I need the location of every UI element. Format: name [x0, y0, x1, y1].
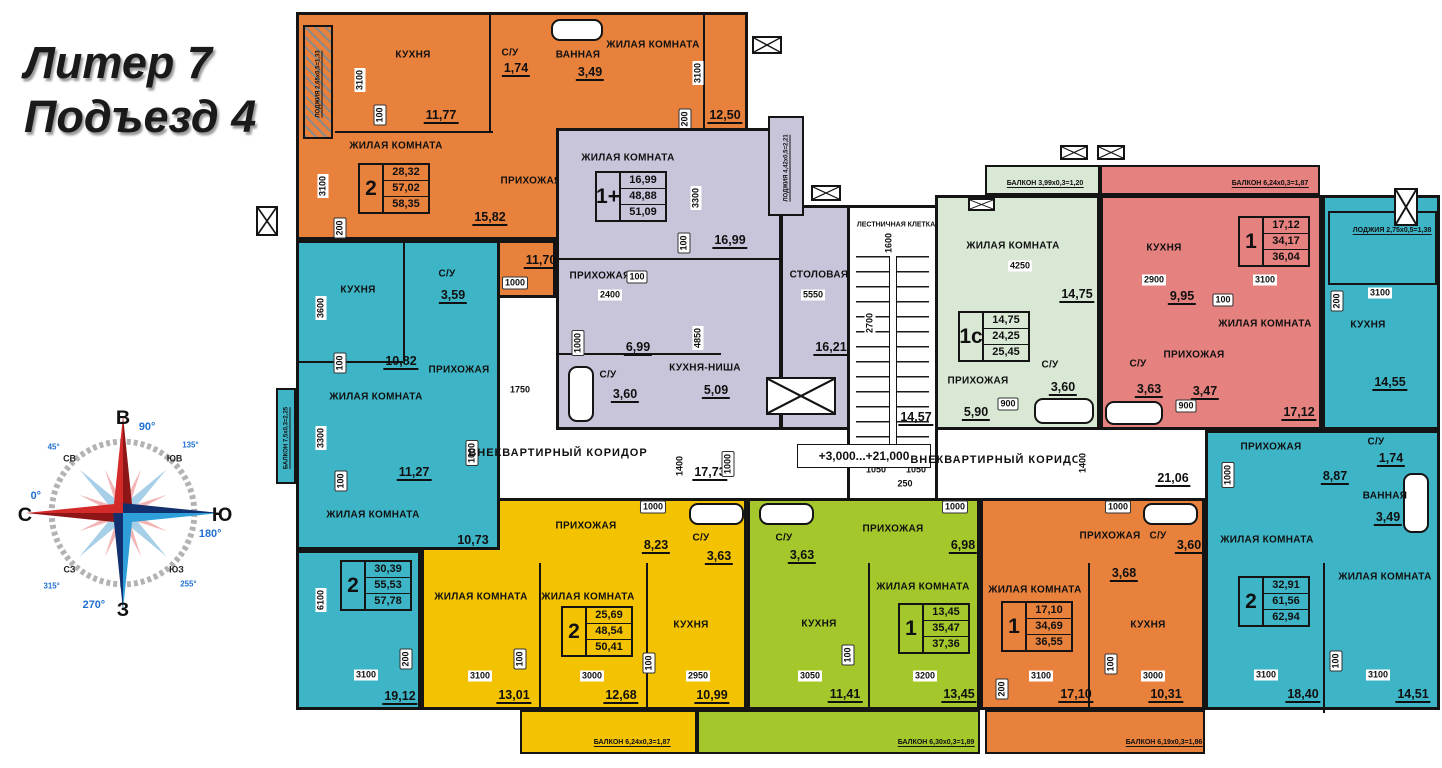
- balcony-label: БАЛКОН 3,99х0,3=1,20: [1007, 180, 1084, 188]
- spec-table: 2 32,91 61,56 62,94: [1238, 576, 1310, 627]
- balcony-strip: БАЛКОН 6,24х0,3=1,87: [1100, 165, 1320, 195]
- compass-deg-nw: 315°: [43, 581, 59, 590]
- dim: 2950: [686, 671, 710, 682]
- dim: 250: [895, 479, 914, 490]
- dim: 100: [1105, 653, 1118, 674]
- room-living2: ЖИЛАЯ КОМНАТА: [606, 40, 699, 51]
- room-wc: С/У: [438, 269, 455, 280]
- room-kitchen: КУХНЯ: [340, 285, 375, 296]
- balcony-label: БАЛКОН 7,5х0,3=2,25: [284, 407, 291, 469]
- spec-area: 55,53: [366, 578, 410, 594]
- loggia-strip: ЛОДЖИЯ 2,65х0,5=1,33: [303, 25, 333, 139]
- window-brace-icon: [1097, 145, 1125, 160]
- wall-line: [539, 563, 541, 713]
- room-living1: ЖИЛАЯ КОМНАТА: [329, 392, 422, 403]
- compass-south: Ю: [212, 504, 232, 526]
- dim: 100: [335, 470, 348, 491]
- wall-line: [1323, 563, 1325, 713]
- compass-sw: ЮЗ: [169, 564, 184, 574]
- spec-living: 17,12: [1264, 218, 1308, 234]
- room-bath: ВАННАЯ: [556, 50, 601, 61]
- dim: 100: [643, 652, 656, 673]
- spec-rooms: 1с: [960, 313, 984, 360]
- room-kitchen-area: 10,82: [383, 354, 418, 370]
- bathtub-icon: [759, 503, 814, 525]
- spec-total: 37,36: [924, 637, 968, 652]
- dim: 3200: [913, 671, 937, 682]
- room-living2: ЖИЛАЯ КОМНАТА: [541, 592, 634, 603]
- bathtub-icon: [1143, 503, 1198, 525]
- window-brace-icon: [1060, 145, 1088, 160]
- spec-values: 30,39 55,53 57,78: [366, 562, 410, 609]
- room-kitchen: КУХНЯ: [1130, 620, 1165, 631]
- compass-deg-ne: 45°: [48, 443, 60, 452]
- room-kitchen: КУХНЯ: [395, 50, 430, 61]
- window-brace-icon: [752, 36, 782, 54]
- spec-area: 61,56: [1264, 594, 1308, 610]
- spec-rooms: 1+: [597, 173, 621, 220]
- room-dining: СТОЛОВАЯ: [790, 270, 849, 281]
- room-wc-area: 3,59: [439, 288, 467, 304]
- spec-total: 25,45: [984, 345, 1028, 360]
- room-kitchen-area: 10,99: [694, 688, 729, 704]
- apartment-red: КУХНЯ 2900 9,95 100 1 17,12 34,17 36,04 …: [1100, 195, 1322, 430]
- room-hall-area: 6,98: [949, 538, 977, 554]
- compass-deg-sw: 255°: [180, 579, 196, 588]
- room-bath-area: 3,49: [576, 65, 604, 81]
- room-wc: С/У: [1041, 360, 1058, 371]
- compass-deg-west: 270°: [83, 599, 106, 611]
- spec-living: 13,45: [924, 605, 968, 621]
- bathtub-icon: [689, 503, 744, 525]
- spec-living: 16,99: [621, 173, 665, 189]
- spec-values: 17,10 34,69 36,55: [1027, 603, 1071, 650]
- compass-deg-south: 180°: [199, 528, 222, 540]
- room-living-area: 17,10: [1058, 687, 1093, 703]
- compass-east: В: [116, 407, 130, 429]
- dim: 3000: [580, 671, 604, 682]
- dim: 200: [400, 648, 413, 669]
- room-hall: ПРИХОЖАЯ: [1164, 350, 1225, 361]
- stairwell-area: 14,57: [898, 410, 933, 426]
- room-living: ЖИЛАЯ КОМНАТА: [876, 582, 969, 593]
- spec-total: 50,41: [587, 640, 631, 655]
- wall-line: [489, 15, 491, 131]
- spec-table: 1 17,12 34,17 36,04: [1238, 216, 1310, 267]
- room-hall-area: 11,70: [524, 253, 559, 269]
- apartment-green-1c: ЖИЛАЯ КОМНАТА 4250 14,75 1с 14,75 24,25 …: [935, 195, 1100, 430]
- apartment-orange-bottom: ЖИЛАЯ КОМНАТА 1 17,10 34,69 36,55 ПРИХОЖ…: [980, 498, 1205, 710]
- room-living: ЖИЛАЯ КОМНАТА: [988, 585, 1081, 596]
- room-hall-area: 6,99: [624, 340, 652, 356]
- spec-area: 24,25: [984, 329, 1028, 345]
- room-kitchen-area: 11,41: [828, 687, 863, 703]
- dim: 2400: [598, 290, 622, 301]
- room-wc: С/У: [775, 533, 792, 544]
- room-hall: ПРИХОЖАЯ: [501, 176, 562, 187]
- dim: 3100: [318, 174, 329, 198]
- dim: 100: [678, 232, 691, 253]
- spec-rooms: 1: [1003, 603, 1027, 650]
- bathtub-icon: [551, 19, 603, 41]
- compass-ne: СВ: [63, 453, 76, 463]
- dim: 1000: [942, 501, 968, 514]
- spec-living: 32,91: [1264, 578, 1308, 594]
- spec-table: 1 13,45 35,47 37,36: [898, 603, 970, 654]
- dim: 900: [997, 398, 1018, 411]
- dim: 1000: [1105, 501, 1131, 514]
- dim: 6100: [316, 588, 327, 612]
- room-living1-area: 13,01: [496, 688, 531, 704]
- spec-total: 62,94: [1264, 610, 1308, 625]
- compass-west: З: [117, 599, 129, 621]
- dim: 4250: [1008, 261, 1032, 272]
- dim: 100: [842, 644, 855, 665]
- stair-rail: [889, 256, 897, 456]
- apartment-teal-right-bottom: ПРИХОЖАЯ 1000 8,87 С/У 1,74 ВАННАЯ 3,49 …: [1205, 430, 1440, 710]
- room-living3-area: 19,12: [382, 689, 417, 705]
- spec-rooms: 2: [342, 562, 366, 609]
- dim: 1400: [1078, 451, 1089, 475]
- dim: 2700: [865, 311, 876, 335]
- spec-living: 25,69: [587, 608, 631, 624]
- compass-se: ЮВ: [167, 453, 183, 463]
- room-living2: ЖИЛАЯ КОМНАТА: [1338, 572, 1431, 583]
- dim: 3050: [798, 671, 822, 682]
- room-hall-area: 5,90: [962, 405, 990, 421]
- room-wc: С/У: [1149, 531, 1166, 542]
- dim: 3100: [1366, 670, 1390, 681]
- room-hall-area: 3,68: [1110, 566, 1138, 582]
- dim: 1750: [508, 385, 532, 396]
- spec-area: 48,88: [621, 189, 665, 205]
- room-living2-area: 12,50: [707, 108, 742, 124]
- dim: 3100: [1368, 288, 1392, 299]
- room-hall-area: 3,47: [1191, 384, 1219, 400]
- room-wc: С/У: [1367, 437, 1384, 448]
- room-kitchen: КУХНЯ: [801, 619, 836, 630]
- window-brace-icon: [811, 185, 841, 201]
- room-living-area: 16,99: [712, 233, 747, 249]
- dim: 4850: [693, 326, 704, 350]
- dim: 100: [626, 271, 647, 284]
- title-line1: Литер 7: [24, 36, 256, 90]
- room-living1-area: 11,27: [397, 465, 432, 481]
- bathtub-icon: [1403, 473, 1429, 533]
- apartment-teal-left: КУХНЯ С/У 3,59 3600 100 10,82 ПРИХОЖАЯ Ж…: [296, 240, 500, 550]
- bathtub-icon: [1105, 401, 1163, 425]
- window-brace-icon: [256, 206, 278, 236]
- room-wc-area: 1,74: [502, 61, 530, 77]
- room-hall: ПРИХОЖАЯ: [556, 521, 617, 532]
- balcony-label: БАЛКОН 6,24х0,3=1,87: [1232, 180, 1309, 188]
- compass-deg-north: 0°: [31, 490, 41, 502]
- dim: 200: [996, 678, 1009, 699]
- spec-living: 30,39: [366, 562, 410, 578]
- wall-line: [335, 131, 493, 133]
- dim: 3100: [1029, 671, 1053, 682]
- spec-table: 1с 14,75 24,25 25,45: [958, 311, 1030, 362]
- spec-area: 48,54: [587, 624, 631, 640]
- spec-area: 35,47: [924, 621, 968, 637]
- dim: 900: [1175, 400, 1196, 413]
- spec-living: 14,75: [984, 313, 1028, 329]
- spec-total: 51,09: [621, 205, 665, 220]
- bathtub-icon: [568, 366, 594, 422]
- balcony-label: БАЛКОН 6,24х0,3=1,87: [594, 739, 671, 747]
- room-kitchen-niche-area: 5,09: [702, 383, 730, 399]
- room-kitchen-area: 9,95: [1168, 289, 1196, 305]
- room-living1-area: 18,40: [1285, 687, 1320, 703]
- balcony-strip: БАЛКОН 3,99х0,3=1,20: [985, 165, 1100, 195]
- room-wc-area: 3,60: [1175, 538, 1203, 554]
- compass-deg-se: 135°: [182, 441, 198, 450]
- wall-line: [646, 563, 648, 713]
- spec-area: 34,69: [1027, 619, 1071, 635]
- compass-rose: С В Ю З 0° 90° 180° 270° СВ ЮВ ЮЗ СЗ 45°…: [14, 404, 232, 622]
- window-brace-icon: [968, 198, 995, 211]
- dim: 1000: [640, 501, 666, 514]
- dim: 1000: [1222, 462, 1235, 488]
- floor-plan: Литер 7 Подъезд 4 ПРИХОЖАЯ 1000 8,23 С/У…: [0, 0, 1442, 768]
- dim: 3100: [1253, 275, 1277, 286]
- room-wc-area: 3,63: [1135, 382, 1163, 398]
- spec-total: 36,55: [1027, 635, 1071, 650]
- room-kitchen-area: 14,55: [1372, 375, 1407, 391]
- corridor-left-label: ВНЕКВАРТИРНЫЙ КОРИДОР: [468, 447, 647, 459]
- bathtub-icon: [1034, 398, 1094, 424]
- loggia-strip: ЛОДЖИЯ 4,42х0,5=2,21: [768, 116, 804, 216]
- room-living: ЖИЛАЯ КОМНАТА: [581, 153, 674, 164]
- room-hall-area: 8,23: [642, 538, 670, 554]
- dim: 3100: [355, 68, 366, 92]
- room-wc-area: 3,63: [705, 549, 733, 565]
- room-wc-area: 3,60: [611, 387, 639, 403]
- dim: 100: [514, 648, 527, 669]
- room-dining-area: 16,21: [813, 340, 848, 356]
- apartment-teal-left-lower: 2 30,39 55,53 57,78 6100 200 3100 19,12: [296, 550, 421, 710]
- room-hall: ПРИХОЖАЯ: [1080, 531, 1141, 542]
- loggia-label: ЛОДЖИЯ 4,42х0,5=2,21: [784, 134, 791, 201]
- apartment-teal-right-top: ЛОДЖИЯ 2,75х0,5=1,38 3100 200 КУХНЯ 14,5…: [1322, 195, 1440, 430]
- room-living2-area: 10,73: [455, 533, 490, 549]
- room-wc-area: 1,74: [1377, 451, 1405, 467]
- room-living-area: 13,45: [941, 687, 976, 703]
- apartment-purple: ЖИЛАЯ КОМНАТА 1+ 16,99 48,88 51,09 3300 …: [556, 128, 782, 430]
- room-living1: ЖИЛАЯ КОМНАТА: [349, 141, 442, 152]
- spec-rooms: 1: [1240, 218, 1264, 265]
- balcony-strip: БАЛКОН 6,30х0,3=1,89: [697, 710, 980, 754]
- dim: 100: [334, 352, 347, 373]
- dim: 1600: [884, 231, 895, 255]
- room-living: ЖИЛАЯ КОМНАТА: [966, 241, 1059, 252]
- balcony-strip: БАЛКОН 7,5х0,3=2,25: [276, 388, 296, 484]
- room-wc: С/У: [501, 48, 518, 59]
- loggia-strip: ЛОДЖИЯ 2,75х0,5=1,38: [1328, 211, 1437, 285]
- room-kitchen-niche: КУХНЯ-НИША: [669, 363, 741, 374]
- spec-table: 2 28,32 57,02 58,35: [358, 163, 430, 214]
- dim: 2900: [1142, 275, 1166, 286]
- room-living2-area: 12,68: [603, 688, 638, 704]
- dim: 3300: [691, 186, 702, 210]
- room-hall: ПРИХОЖАЯ: [863, 524, 924, 535]
- balcony-strip: БАЛКОН 6,19х0,3=1,86: [985, 710, 1205, 754]
- dim: 1400: [675, 454, 686, 478]
- spec-table: 2 25,69 48,54 50,41: [561, 606, 633, 657]
- compass-north: С: [18, 504, 32, 526]
- room-hall: ПРИХОЖАЯ: [948, 376, 1009, 387]
- compass-nw: СЗ: [64, 564, 76, 574]
- spec-table: 1 17,10 34,69 36,55: [1001, 601, 1073, 652]
- compass-deg-east: 90°: [139, 421, 155, 433]
- apartment-orange-top-hall: 11,70 1000: [493, 240, 556, 298]
- dim: 1000: [572, 330, 585, 356]
- room-living: ЖИЛАЯ КОМНАТА: [1218, 319, 1311, 330]
- stairwell-label: ЛЕСТНИЧНАЯ КЛЕТКА: [857, 222, 935, 229]
- room-living1-area: 15,82: [472, 210, 507, 226]
- room-wc-area: 3,63: [788, 548, 816, 564]
- dim: 3000: [1141, 671, 1165, 682]
- spec-values: 25,69 48,54 50,41: [587, 608, 631, 655]
- dim: 200: [679, 108, 692, 129]
- room-living1: ЖИЛАЯ КОМНАТА: [1220, 535, 1313, 546]
- room-kitchen-area: 11,77: [424, 108, 459, 124]
- room-wc-area: 3,60: [1049, 380, 1077, 396]
- dim: 3100: [468, 671, 492, 682]
- dim: 3300: [316, 426, 327, 450]
- room-living-area: 14,75: [1059, 287, 1094, 303]
- room-bath-area: 3,49: [1374, 510, 1402, 526]
- spec-values: 28,32 57,02 58,35: [384, 165, 428, 212]
- spec-table: 1+ 16,99 48,88 51,09: [595, 171, 667, 222]
- room-hall: ПРИХОЖАЯ: [429, 365, 490, 376]
- room-kitchen: КУХНЯ: [1350, 320, 1385, 331]
- loggia-label: ЛОДЖИЯ 2,65х0,5=1,33: [316, 50, 323, 117]
- room-hall-area: 8,87: [1321, 469, 1349, 485]
- balcony-strip: БАЛКОН 6,24х0,3=1,87: [520, 710, 697, 754]
- corridor-right-label: ВНЕКВАРТИРНЫЙ КОРИДОР: [910, 454, 1089, 466]
- room-wc: С/У: [1129, 359, 1146, 370]
- room-bath: ВАННАЯ: [1363, 491, 1408, 502]
- dim: 5550: [801, 290, 825, 301]
- room-living2-area: 14,51: [1395, 687, 1430, 703]
- balcony-label: БАЛКОН 6,30х0,3=1,89: [898, 739, 975, 747]
- room-living1: ЖИЛАЯ КОМНАТА: [434, 592, 527, 603]
- room-living2: ЖИЛАЯ КОМНАТА: [326, 510, 419, 521]
- spec-table: 2 30,39 55,53 57,78: [340, 560, 412, 611]
- elevator-shaft-icon: [766, 377, 836, 415]
- dim: 100: [374, 104, 387, 125]
- dim: 3600: [316, 296, 327, 320]
- room-wc: С/У: [599, 370, 616, 381]
- spec-values: 16,99 48,88 51,09: [621, 173, 665, 220]
- spec-area: 34,17: [1264, 234, 1308, 250]
- spec-rooms: 2: [1240, 578, 1264, 625]
- dim: 200: [334, 217, 347, 238]
- spec-total: 58,35: [384, 197, 428, 212]
- spec-living: 17,10: [1027, 603, 1071, 619]
- wall-line: [559, 258, 783, 260]
- page-title: Литер 7 Подъезд 4: [24, 36, 256, 144]
- spec-living: 28,32: [384, 165, 428, 181]
- loggia-label: ЛОДЖИЯ 2,75х0,5=1,38: [1353, 227, 1432, 235]
- spec-rooms: 2: [563, 608, 587, 655]
- spec-values: 14,75 24,25 25,45: [984, 313, 1028, 360]
- title-line2: Подъезд 4: [24, 90, 256, 144]
- dim: 3100: [693, 61, 704, 85]
- window-brace-icon: [1394, 188, 1418, 226]
- wall-line: [403, 243, 405, 361]
- spec-total: 36,04: [1264, 250, 1308, 265]
- room-kitchen: КУХНЯ: [1146, 243, 1181, 254]
- room-hall: ПРИХОЖАЯ: [1241, 442, 1302, 453]
- balcony-label: БАЛКОН 6,19х0,3=1,86: [1126, 739, 1203, 747]
- spec-values: 17,12 34,17 36,04: [1264, 218, 1308, 265]
- dim: 200: [1331, 290, 1344, 311]
- spec-area: 57,02: [384, 181, 428, 197]
- dim: 1000: [502, 277, 528, 290]
- room-kitchen: КУХНЯ: [673, 620, 708, 631]
- wall-line: [868, 563, 870, 713]
- dim: 100: [1212, 294, 1233, 307]
- spec-rooms: 1: [900, 605, 924, 652]
- spec-total: 57,78: [366, 594, 410, 609]
- corridor-right-area: 21,06: [1155, 471, 1190, 487]
- apartment-green-bottom: ПРИХОЖАЯ 1000 6,98 С/У 3,63 КУХНЯ ЖИЛАЯ …: [747, 498, 980, 710]
- dim: 1000: [722, 451, 735, 477]
- dim: 100: [1330, 650, 1343, 671]
- dim: 3100: [354, 670, 378, 681]
- spec-values: 32,91 61,56 62,94: [1264, 578, 1308, 625]
- room-wc: С/У: [692, 533, 709, 544]
- room-hall: ПРИХОЖАЯ: [570, 271, 631, 282]
- room-living-area: 17,12: [1281, 405, 1316, 421]
- dim: 3100: [1254, 670, 1278, 681]
- room-kitchen-area: 10,31: [1148, 687, 1183, 703]
- spec-rooms: 2: [360, 165, 384, 212]
- spec-values: 13,45 35,47 37,36: [924, 605, 968, 652]
